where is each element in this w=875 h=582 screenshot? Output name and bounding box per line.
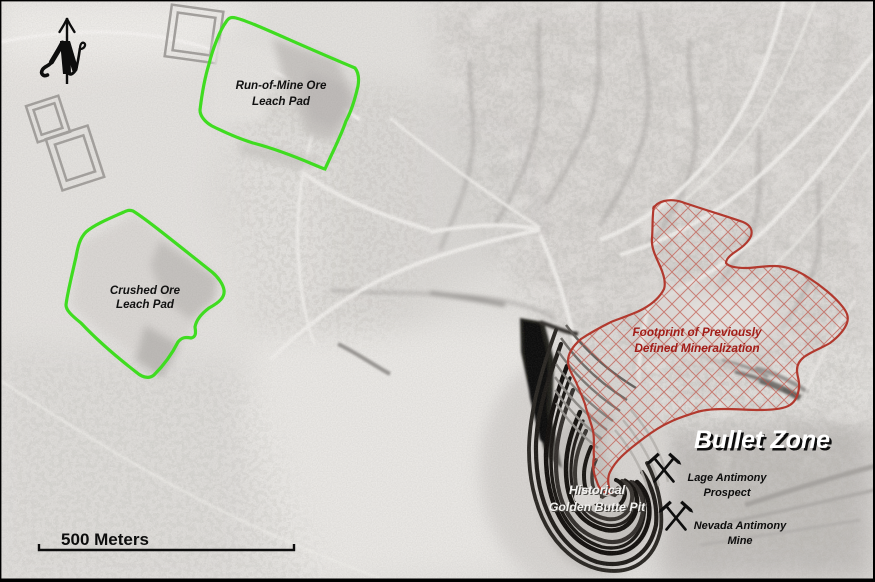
svg-text:Footprint of Previously: Footprint of Previously xyxy=(632,325,763,339)
svg-text:Prospect: Prospect xyxy=(703,487,751,499)
svg-text:Nevada Antimony: Nevada Antimony xyxy=(694,520,787,532)
svg-text:Leach Pad: Leach Pad xyxy=(116,298,175,311)
svg-text:Golden Butte Pit: Golden Butte Pit xyxy=(549,500,646,514)
svg-text:Leach Pad: Leach Pad xyxy=(252,95,311,108)
svg-text:Lage Antimony: Lage Antimony xyxy=(687,472,767,484)
svg-text:500 Meters: 500 Meters xyxy=(61,530,149,549)
svg-text:Crushed Ore: Crushed Ore xyxy=(110,284,181,297)
svg-text:Mine: Mine xyxy=(727,535,752,547)
svg-text:Historical: Historical xyxy=(569,483,626,497)
svg-text:Run-of-Mine Ore: Run-of-Mine Ore xyxy=(236,79,327,92)
svg-text:Bullet Zone: Bullet Zone xyxy=(694,426,830,454)
svg-text:Defined Mineralization: Defined Mineralization xyxy=(634,341,759,355)
